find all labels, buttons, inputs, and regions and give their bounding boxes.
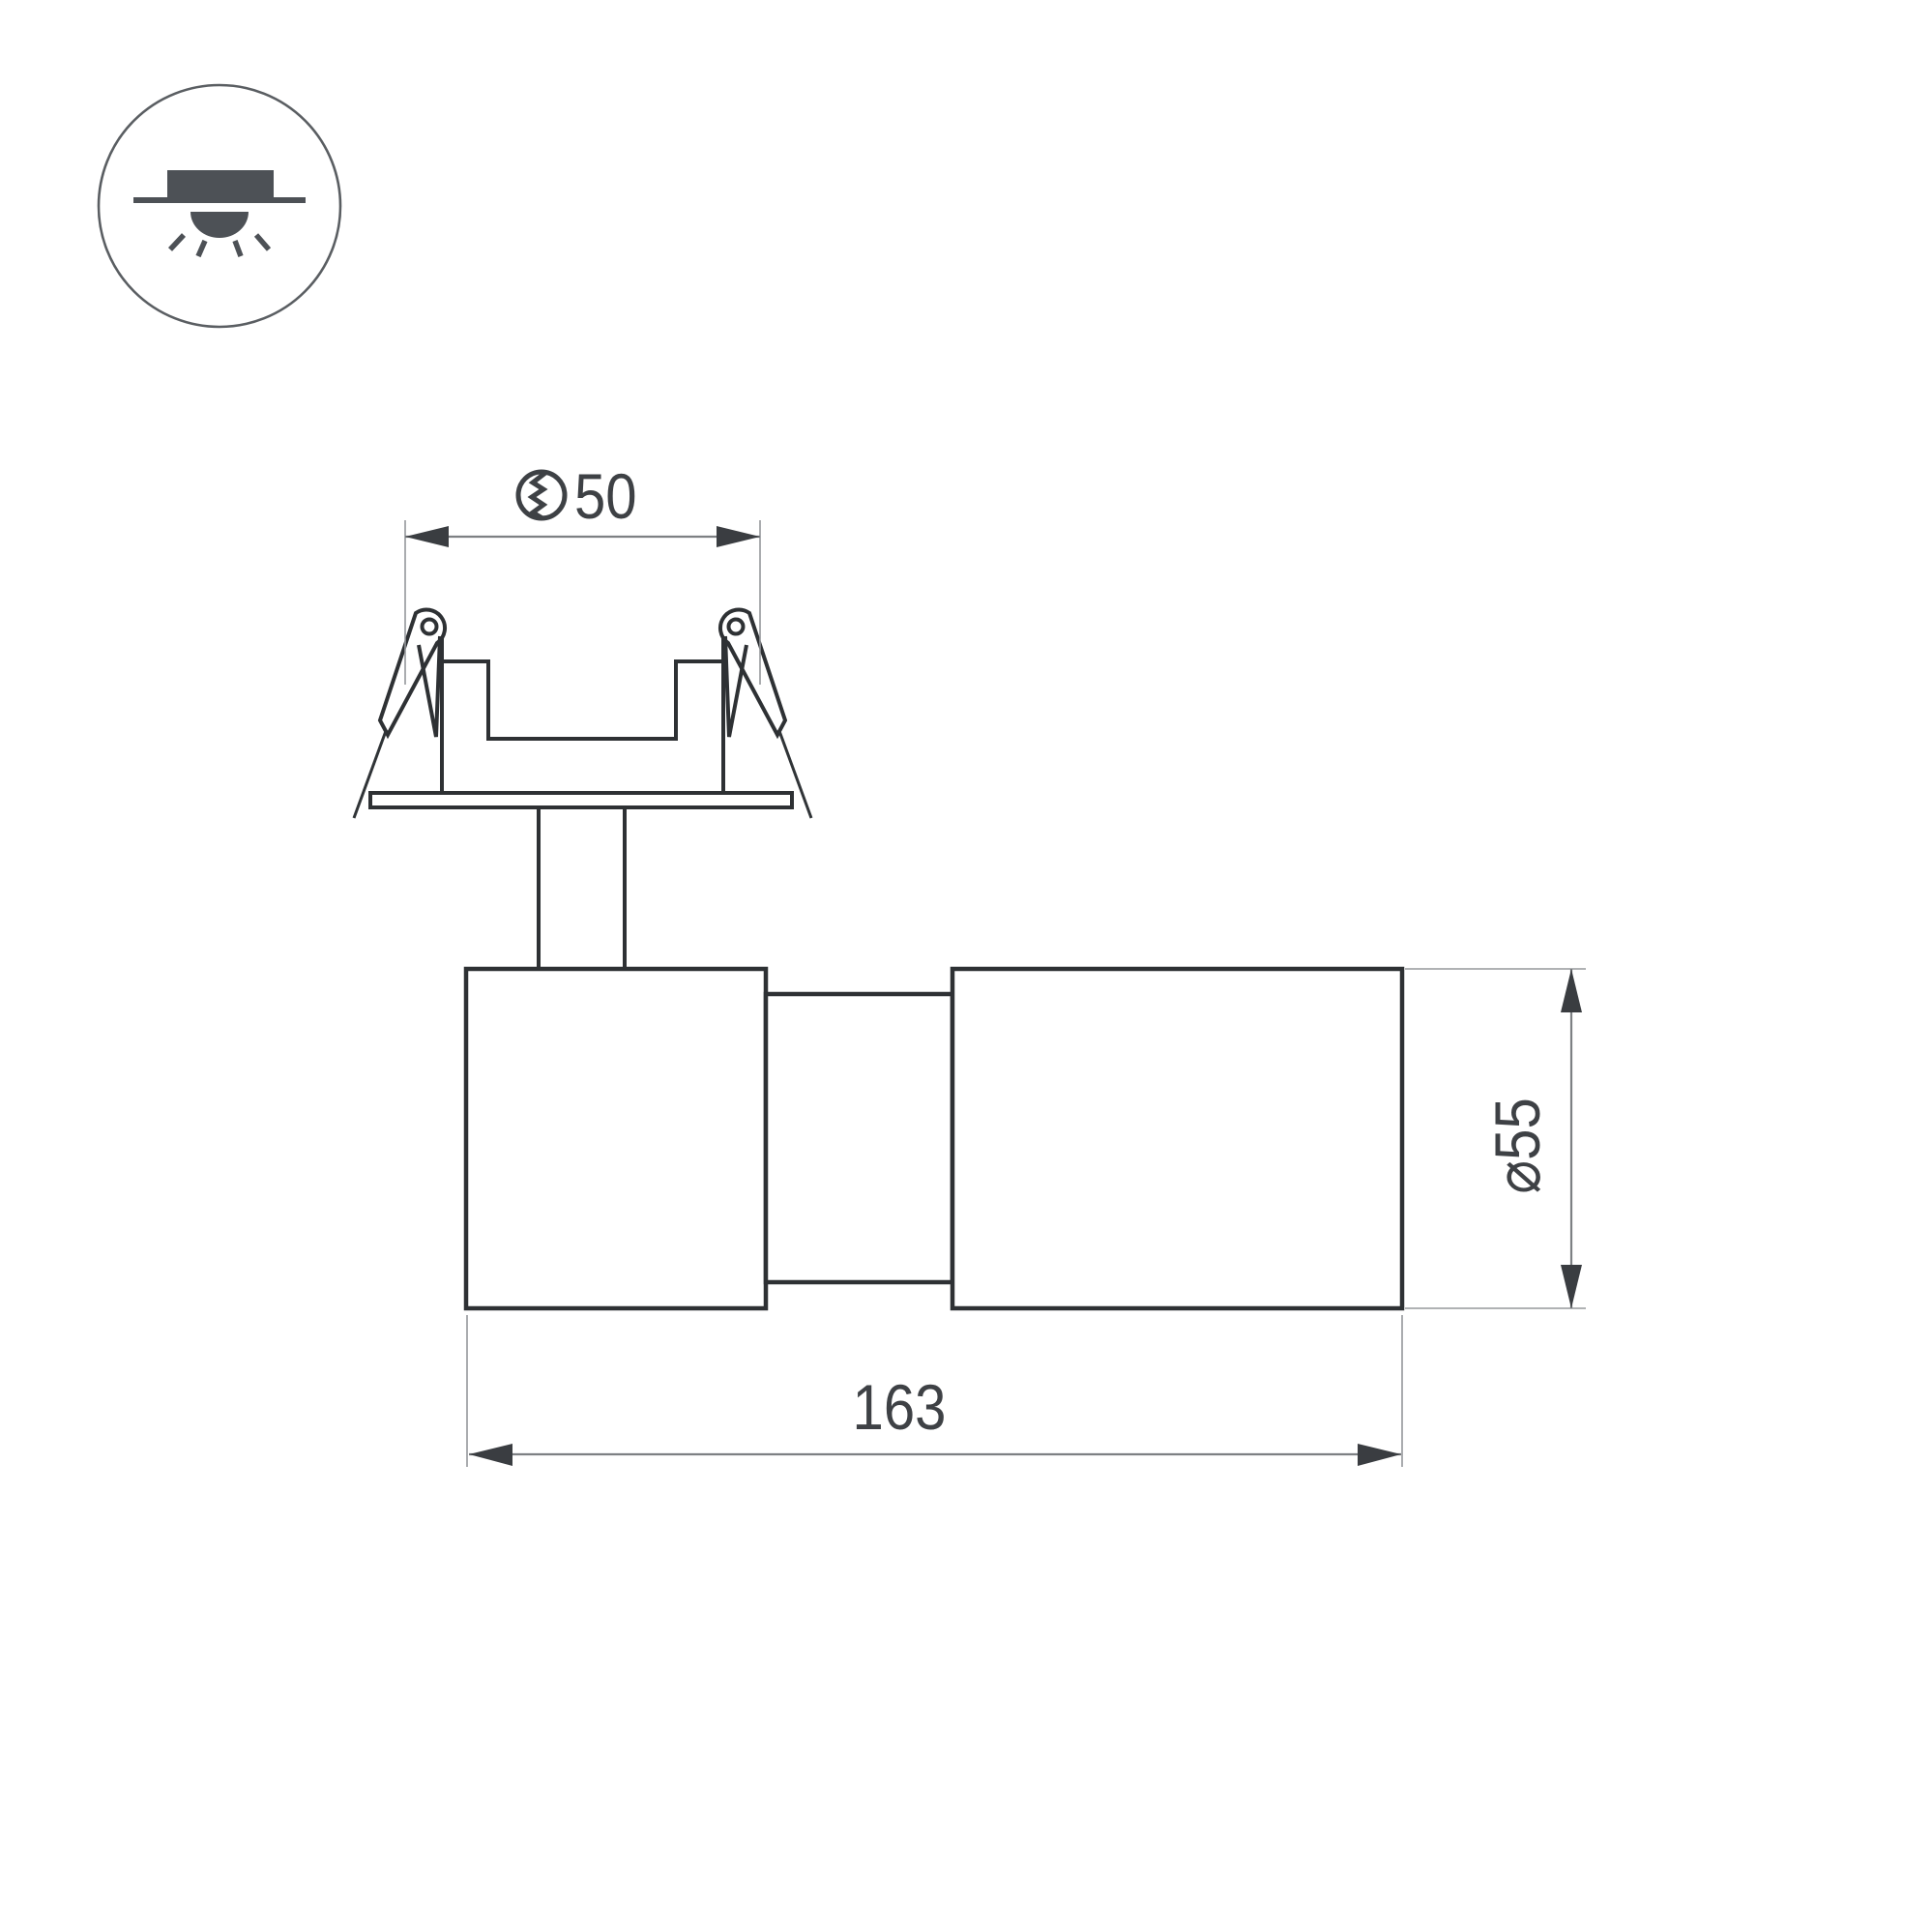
length-dimension-value: 163 xyxy=(853,1373,947,1444)
arrowhead-bottom xyxy=(1561,1265,1582,1308)
icon-light-ray xyxy=(170,235,184,249)
icon-light-ray xyxy=(235,241,241,256)
icon-circle xyxy=(99,85,340,327)
arrowhead-top xyxy=(1561,969,1582,1012)
arrowhead-left xyxy=(469,1444,512,1466)
spring-clip-right xyxy=(720,609,811,818)
cutout-dimension: 50 xyxy=(405,462,760,685)
spotlight-body xyxy=(466,969,1402,1308)
length-dimension: 163 xyxy=(467,1315,1402,1467)
clip-pivot-hole xyxy=(423,620,437,634)
body-rear-cylinder xyxy=(466,969,766,1308)
body-front-cylinder xyxy=(952,969,1402,1308)
arrowhead-left xyxy=(405,526,449,547)
icon-light-ray xyxy=(256,235,269,249)
recessed-mount-icon xyxy=(99,85,340,327)
diameter-dimension: ⌀55 xyxy=(1405,969,1586,1308)
icon-housing-rect xyxy=(167,170,274,200)
icon-ceiling-line xyxy=(133,197,306,203)
drawing-page: 50 163 ⌀55 xyxy=(0,0,1932,1932)
mounting-housing-profile xyxy=(442,632,723,793)
arrowhead-right xyxy=(717,526,760,547)
icon-lamp-dome xyxy=(190,212,249,238)
recessed-mounting-ring xyxy=(354,609,811,971)
cutout-symbol-sawtooth xyxy=(532,473,545,518)
trim-flange xyxy=(370,793,792,807)
cutout-dimension-value: 50 xyxy=(574,462,637,533)
arrowhead-right xyxy=(1358,1444,1401,1466)
spring-clip-left xyxy=(354,609,445,818)
icon-light-ray xyxy=(198,241,205,256)
diameter-dimension-value: ⌀55 xyxy=(1483,1098,1554,1194)
body-knuckle xyxy=(766,994,952,1282)
hole-cutout-icon xyxy=(518,472,565,518)
technical-drawing-canvas: 50 163 ⌀55 xyxy=(0,0,1932,1932)
clip-pivot-hole xyxy=(729,620,744,634)
